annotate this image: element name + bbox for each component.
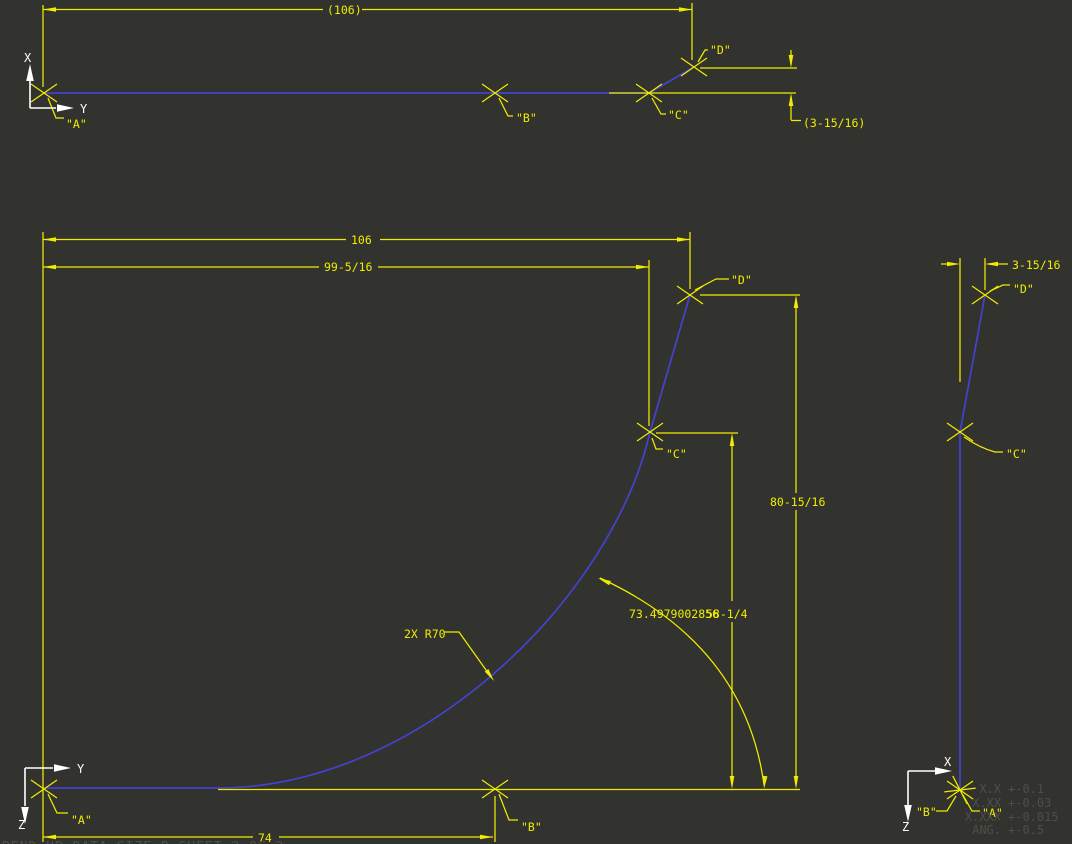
front-dim-radius[interactable]: 2X R70 — [404, 627, 496, 682]
tolerance-label-0: X.X — [979, 782, 1001, 796]
front-dim-arc-length-text[interactable]: 73.4979002856 — [629, 607, 719, 621]
side-dim-offset[interactable]: 3-15/16 — [941, 258, 1061, 382]
top-view: (106) (3-15/16) "A" "B" "C" "D" — [24, 3, 865, 131]
top-dim-overall[interactable]: (106) — [43, 3, 692, 87]
front-point-d-label[interactable]: "D" — [731, 273, 752, 287]
front-point-b-label[interactable]: "B" — [521, 820, 542, 834]
front-dim-overall-text[interactable]: 106 — [351, 233, 372, 247]
top-axis-x-label: X — [24, 51, 32, 65]
front-axis-z-label: Z — [18, 818, 25, 832]
top-point-b-label[interactable]: "B" — [516, 111, 537, 125]
side-point-b-label[interactable]: "B" — [916, 805, 937, 819]
front-dim-to-c[interactable]: 99-5/16 — [43, 260, 649, 426]
front-point-c-label[interactable]: "C" — [666, 447, 687, 461]
tolerance-label-1: X.XX — [972, 796, 1002, 810]
side-profile-line[interactable] — [960, 295, 985, 788]
front-dim-bottom[interactable]: 74 — [43, 796, 495, 844]
top-point-c-label[interactable]: "C" — [668, 108, 689, 122]
tolerance-value-0: +-0.1 — [1008, 782, 1044, 796]
front-dim-to-c-text[interactable]: 99-5/16 — [324, 260, 373, 274]
sheet-footer-text: BEND UP DATA SIZE B SHEET 2 OF 2 — [2, 840, 284, 844]
tolerance-label-2: X.XXX — [965, 810, 1002, 824]
top-point-a-label[interactable]: "A" — [66, 117, 87, 131]
top-bend-segment[interactable] — [649, 67, 694, 93]
side-csys-icon: X Z — [902, 755, 952, 834]
front-dim-height-d[interactable]: 80-15/16 — [700, 295, 825, 789]
top-dim-offset-text[interactable]: (3-15/16) — [803, 116, 865, 130]
tolerance-label-3: ANG. — [972, 823, 1001, 837]
side-axis-z-label: Z — [902, 820, 909, 834]
front-dim-overall[interactable]: 106 — [43, 232, 690, 842]
tolerance-value-2: +-0.015 — [1008, 810, 1059, 824]
front-profile-curve[interactable] — [43, 295, 690, 788]
cad-drawing-svg: (106) (3-15/16) "A" "B" "C" "D" — [0, 0, 1072, 844]
tolerance-value-1: +-0.03 — [1008, 796, 1051, 810]
top-point-markers[interactable] — [31, 50, 708, 118]
side-axis-x-label: X — [944, 755, 952, 769]
top-dim-offset[interactable]: (3-15/16) — [609, 50, 865, 130]
side-view: 3-15/16 "D" "C" "B" "A" X Z X.X +-0 — [902, 258, 1061, 837]
top-point-d-label[interactable]: "D" — [710, 43, 731, 57]
top-axis-y-label: Y — [80, 102, 88, 116]
front-point-a-label[interactable]: "A" — [71, 813, 92, 827]
top-csys-icon: X Y — [24, 51, 88, 116]
front-point-markers[interactable] — [31, 279, 729, 820]
front-view: 106 99-5/16 74 80-15/16 58-1 — [18, 232, 825, 844]
top-dim-overall-text[interactable]: (106) — [327, 3, 362, 17]
side-point-d-label[interactable]: "D" — [1013, 282, 1034, 296]
cad-drawing-canvas: (106) (3-15/16) "A" "B" "C" "D" — [0, 0, 1072, 844]
side-point-c-label[interactable]: "C" — [1006, 447, 1027, 461]
front-axis-y-label: Y — [77, 762, 85, 776]
tolerance-value-3: +-0.5 — [1008, 823, 1044, 837]
tolerance-block: X.X +-0.1 X.XX +-0.03 X.XXX +-0.015 ANG.… — [965, 782, 1059, 837]
side-dim-offset-text[interactable]: 3-15/16 — [1012, 258, 1061, 272]
front-dim-height-d-text[interactable]: 80-15/16 — [770, 495, 825, 509]
front-dim-radius-text[interactable]: 2X R70 — [404, 627, 446, 641]
